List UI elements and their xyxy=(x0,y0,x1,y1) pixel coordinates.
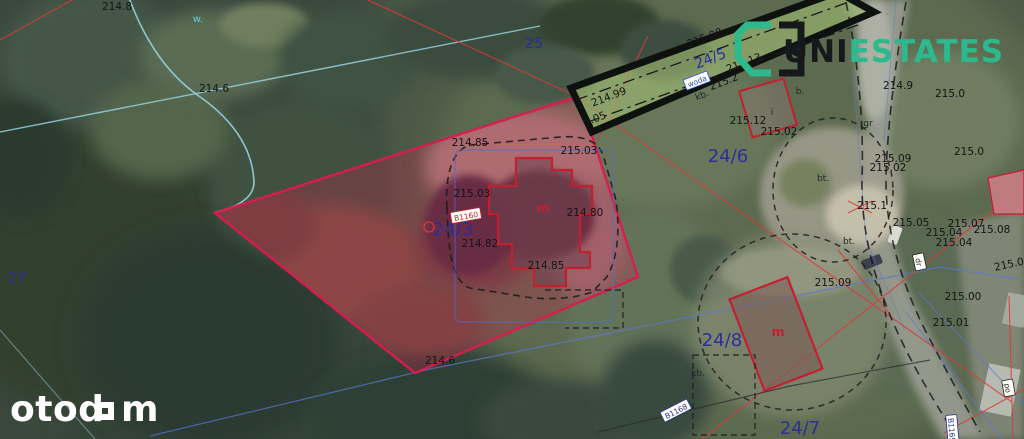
map-label-parcel-lg: 24/6 xyxy=(708,146,748,167)
map-label-parcel-lg: 24/7 xyxy=(780,418,820,439)
map-label-elev: 215.04 xyxy=(936,237,973,249)
logo-text: UNIESTATES xyxy=(783,34,1004,70)
map-label-elev: 214.9 xyxy=(883,80,913,92)
building-top-right xyxy=(988,170,1024,214)
map-badge: po xyxy=(1002,379,1016,397)
map-label-parcel: 25 xyxy=(525,36,543,52)
map-label-elev: 215.00 xyxy=(945,291,982,303)
map-label-elev: 215.08 xyxy=(974,224,1011,236)
map-label-parcel-lg: 24/8 xyxy=(702,330,742,351)
listing-map-image: 214.8w.214.62527214.85215.03215.03214.82… xyxy=(0,0,1024,439)
map-label-dark: b. xyxy=(796,87,805,97)
map-badge: B1169 xyxy=(946,415,960,439)
map-label-elev: 214.85 xyxy=(528,260,565,272)
map-label-dark: bt. xyxy=(843,237,855,247)
map-label-elev: 214.8 xyxy=(102,1,132,13)
map-label-elev: 215.09 xyxy=(815,277,852,289)
map-label-elev: 214.6 xyxy=(199,83,229,95)
map-label-elev: 214.80 xyxy=(567,207,604,219)
map-label-dark: bt. xyxy=(817,174,829,184)
map-label-red: m xyxy=(536,200,549,215)
map-label-elev: 215.1 xyxy=(857,200,887,212)
map-label-cyan: w. xyxy=(193,14,203,25)
watermark-text-right: m xyxy=(121,389,159,430)
map-label-elev: 214.6 xyxy=(425,355,455,367)
map-label-parcel: 27 xyxy=(8,271,26,287)
map-label-elev: 215.0 xyxy=(935,88,965,100)
otodom-watermark: otod m xyxy=(10,389,159,430)
map-label-elev: 214.85 xyxy=(452,137,489,149)
map-label-elev: 215.0 xyxy=(954,146,984,158)
map-label-elev: 215.02 xyxy=(870,162,907,174)
map-label-dark: gr xyxy=(863,119,873,129)
map-label-dark: kb. xyxy=(691,369,705,379)
map-label-elev: 215.02 xyxy=(761,126,798,138)
watermark-text-left: otod xyxy=(10,389,104,430)
map-label-elev: 215.03 xyxy=(561,145,598,157)
map-label-red: m xyxy=(771,324,784,339)
map-label-elev: 215.01 xyxy=(933,317,970,329)
map-label-elev: 215.03 xyxy=(454,188,491,200)
map-label-dark: i xyxy=(771,108,774,118)
map-label-elev: 215.05 xyxy=(893,217,930,229)
map-badge-text: B1169 xyxy=(946,418,957,439)
